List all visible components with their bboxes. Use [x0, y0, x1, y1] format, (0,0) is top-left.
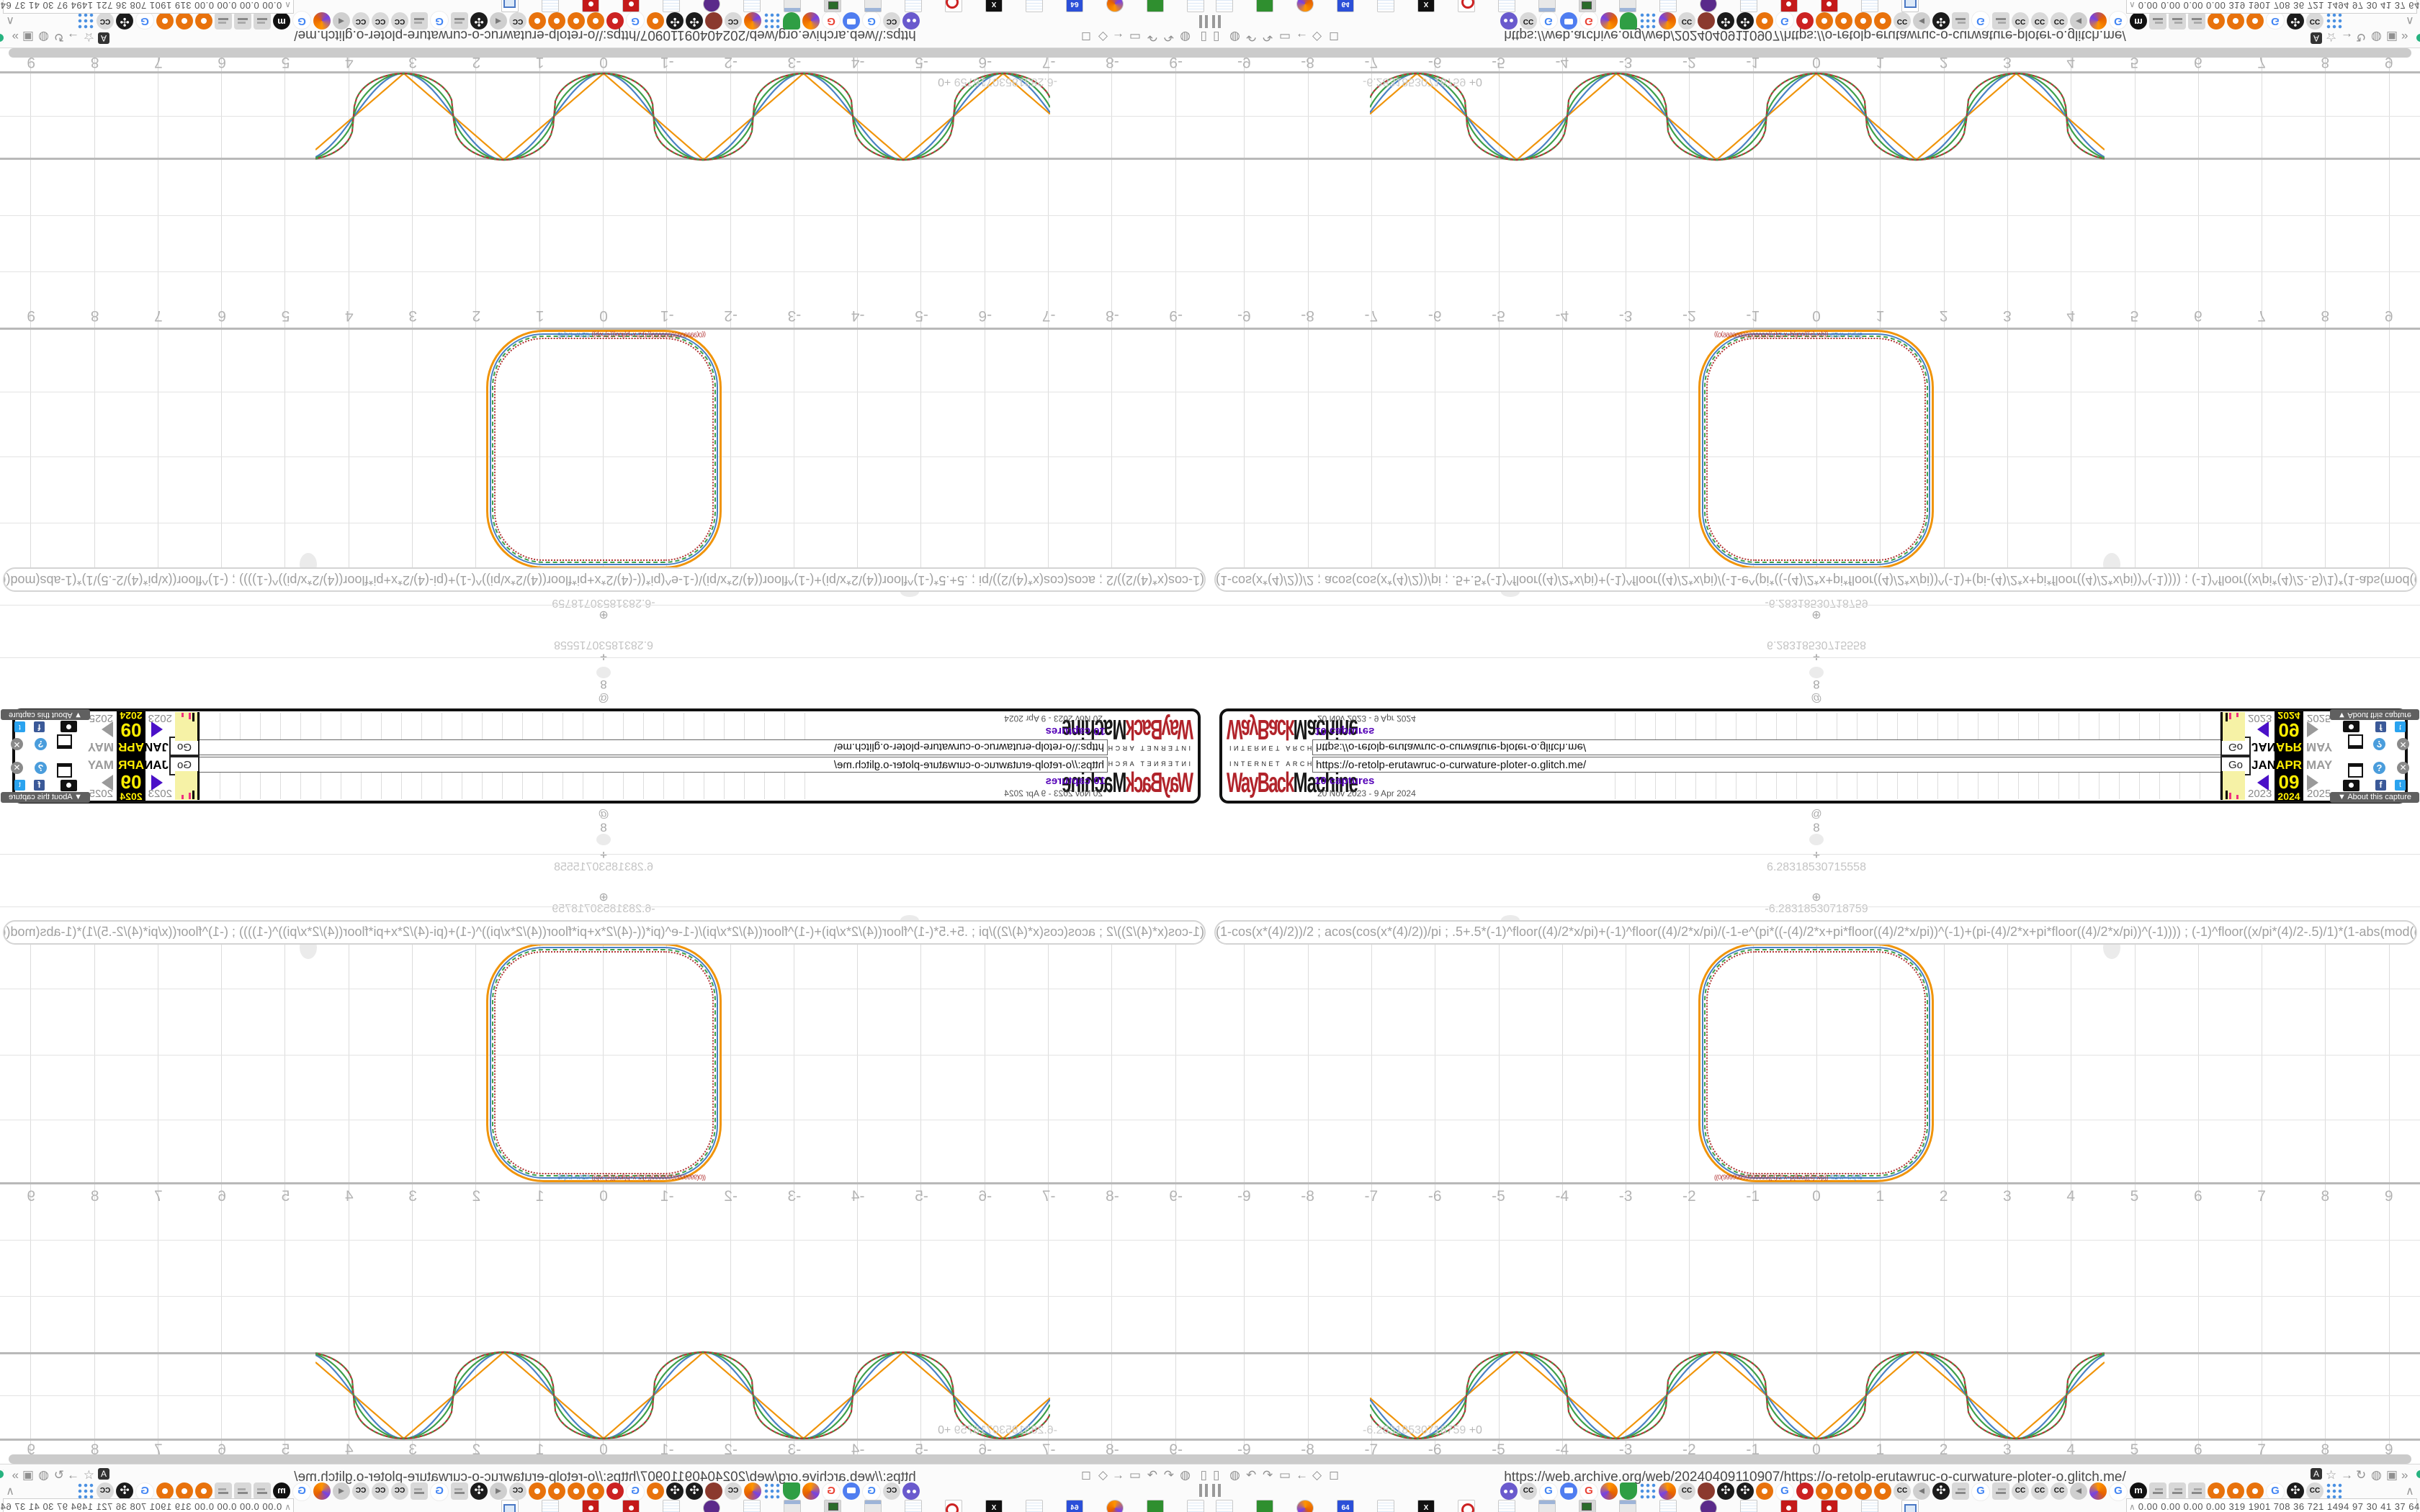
- extension-icon-g[interactable]: G: [626, 1482, 645, 1501]
- extension-icon-chat[interactable]: [843, 12, 860, 30]
- globe-icon[interactable]: ◍: [38, 1468, 49, 1482]
- extension-icon-ff[interactable]: [1659, 1482, 1676, 1500]
- extension-icon-dots[interactable]: [2326, 1482, 2343, 1500]
- extension-icon-gear[interactable]: [1835, 12, 1852, 30]
- extension-icon-gear[interactable]: [529, 12, 546, 30]
- timeline-current-window[interactable]: [2220, 712, 2245, 741]
- extension-icon-gear[interactable]: [156, 1482, 174, 1500]
- taskbar-item-blackx[interactable]: X: [985, 1500, 1003, 1512]
- pause-bars-icon[interactable]: [1212, 15, 1224, 28]
- extension-icon-stairs[interactable]: [451, 1482, 468, 1500]
- taskbar-item-doc[interactable]: [663, 0, 680, 12]
- trash-icon[interactable]: ▯: [1213, 1468, 1219, 1482]
- extension-icon-ff[interactable]: [802, 12, 820, 30]
- taskbar-item-ff[interactable]: [1106, 1500, 1124, 1512]
- taskbar-item-disk[interactable]: 64: [1337, 1500, 1354, 1512]
- window-icon[interactable]: [2348, 763, 2363, 778]
- extension-icon-m[interactable]: m: [273, 1482, 290, 1500]
- translate-icon[interactable]: A: [2311, 1468, 2322, 1480]
- capture-timeline[interactable]: [1615, 713, 2222, 739]
- globe-icon[interactable]: ◍: [1229, 1468, 1240, 1482]
- extension-icon-g[interactable]: G: [292, 1482, 311, 1501]
- pause-bars-icon[interactable]: [1196, 1484, 1208, 1497]
- globe-icon[interactable]: ◍: [1180, 1468, 1191, 1482]
- extension-icon-gear[interactable]: [1835, 1482, 1852, 1500]
- taskbar-item-ff[interactable]: [1106, 0, 1124, 12]
- extension-icon-stairs[interactable]: [2188, 1482, 2205, 1500]
- horizontal-scrollbar[interactable]: [1210, 1454, 2411, 1464]
- taskbar-item-doc[interactable]: [542, 0, 559, 12]
- month-prev[interactable]: JAN: [2251, 758, 2276, 773]
- collapse-chevron-icon[interactable]: ∧: [2406, 14, 2414, 28]
- permission-dot-icon[interactable]: ●: [2416, 34, 2420, 42]
- year-current[interactable]: 2024: [2275, 710, 2303, 721]
- extension-icon-stairs[interactable]: [254, 12, 271, 30]
- extension-icon-gear[interactable]: [176, 1482, 193, 1500]
- facebook-share-icon[interactable]: f: [2375, 721, 2386, 732]
- extension-icon-gear[interactable]: [176, 12, 193, 30]
- extension-icon-stairs[interactable]: [254, 1482, 271, 1500]
- extension-icon-stairs[interactable]: [2169, 1482, 2186, 1500]
- extension-icon-gear[interactable]: [1796, 1482, 1814, 1500]
- taskbar-item-doc[interactable]: [1740, 0, 1757, 12]
- extension-icon-stairs[interactable]: [234, 1482, 251, 1500]
- puzzle-icon[interactable]: ▣: [2386, 30, 2398, 44]
- extension-icon-cc[interactable]: CC: [352, 12, 369, 30]
- extension-icon-g[interactable]: G: [822, 11, 841, 30]
- reload-icon[interactable]: ↻: [2356, 30, 2366, 44]
- taskbar-item-redbox[interactable]: [622, 0, 640, 12]
- taskbar-item-doc[interactable]: [1740, 1500, 1757, 1512]
- extension-icon-gear[interactable]: [548, 12, 565, 30]
- extension-icon-gear[interactable]: [1816, 12, 1833, 30]
- extension-icon-g[interactable]: G: [1579, 1482, 1598, 1501]
- extension-icon-spk[interactable]: ◂: [333, 12, 350, 30]
- extension-icon-ff[interactable]: [802, 1482, 820, 1500]
- taskbar-item-doc[interactable]: [905, 1500, 922, 1512]
- taskbar-item-disk[interactable]: 64: [1066, 0, 1083, 12]
- capture-timeline[interactable]: [1615, 773, 2222, 799]
- facebook-share-icon[interactable]: f: [34, 780, 45, 791]
- extension-icon-gear[interactable]: [156, 12, 174, 30]
- taskbar-item-win[interactable]: [501, 1500, 519, 1512]
- folder-icon[interactable]: ▭: [1279, 1468, 1291, 1482]
- extension-icon-gear[interactable]: [606, 12, 624, 30]
- extension-icon-moth[interactable]: ✣: [2287, 12, 2304, 30]
- star-icon[interactable]: ☆: [84, 30, 94, 44]
- extension-icon-gear[interactable]: [1756, 12, 1773, 30]
- extension-icon-moth[interactable]: ✣: [1717, 1482, 1734, 1500]
- extension-icon-ff[interactable]: [1659, 12, 1676, 30]
- extension-icon-chat[interactable]: [1560, 1482, 1577, 1500]
- stats-chevron-icon[interactable]: ∧: [284, 1502, 291, 1512]
- taskbar-item-ff[interactable]: [1296, 0, 1314, 12]
- extension-icon-ff[interactable]: [744, 1482, 761, 1500]
- back-arrow-icon[interactable]: ←: [1112, 1468, 1124, 1482]
- about-this-capture-button[interactable]: ▼ About this capture: [1, 792, 90, 803]
- lock-icon[interactable]: ◻: [1081, 30, 1091, 44]
- extension-icon-g[interactable]: G: [862, 1482, 881, 1501]
- star-icon[interactable]: ☆: [2326, 30, 2336, 44]
- extension-icon-star8[interactable]: ✣: [470, 12, 488, 30]
- lock-icon[interactable]: ◻: [1081, 1468, 1091, 1482]
- taskbar-item-doc[interactable]: [1377, 0, 1394, 12]
- year-next[interactable]: 2025: [89, 712, 113, 724]
- shield-icon[interactable]: ◇: [1312, 1468, 1322, 1482]
- lock-icon[interactable]: ◻: [1329, 30, 1339, 44]
- overflow-chevrons-icon[interactable]: »: [12, 30, 19, 44]
- extension-icon-disc[interactable]: [1500, 12, 1518, 30]
- taskbar-item-win[interactable]: [1901, 0, 1919, 12]
- extension-icon-gear[interactable]: [568, 12, 585, 30]
- reload-icon[interactable]: ↻: [54, 30, 64, 44]
- extension-icon-stairs[interactable]: [1992, 1482, 2009, 1500]
- extension-icon-moth[interactable]: ✣: [1736, 12, 1754, 30]
- month-next[interactable]: MAY: [88, 758, 114, 773]
- month-current[interactable]: APR: [2275, 758, 2303, 773]
- extension-icon-moth[interactable]: ✣: [2287, 1482, 2304, 1500]
- taskbar-item-doc[interactable]: [1377, 1500, 1394, 1512]
- about-this-capture-button[interactable]: ▼ About this capture: [2330, 792, 2419, 803]
- taskbar-item-doc[interactable]: [1187, 0, 1204, 12]
- equation-input[interactable]: (1-cos(x*(4)/2))/2 ; acos(cos(x*(4)/2))/…: [3, 920, 1206, 945]
- extension-icon-gear[interactable]: [647, 1482, 664, 1500]
- taskbar-item-redbox[interactable]: [582, 0, 599, 12]
- help-icon[interactable]: ?: [2373, 738, 2385, 750]
- taskbar-item-calc[interactable]: [864, 1500, 882, 1512]
- extension-icon-stairs[interactable]: [2169, 12, 2186, 30]
- year-current[interactable]: 2024: [117, 710, 145, 721]
- extension-icon-stairs[interactable]: [1952, 12, 1969, 30]
- taskbar-item-green[interactable]: [1256, 0, 1273, 12]
- year-current[interactable]: 2024: [2275, 791, 2303, 802]
- translate-icon[interactable]: A: [2311, 32, 2322, 44]
- pause-bars-icon[interactable]: [1196, 15, 1208, 28]
- collapse-chevron-icon[interactable]: ∧: [6, 14, 14, 28]
- extension-icon-moth[interactable]: ✣: [1717, 12, 1734, 30]
- extension-icon-moth[interactable]: ✣: [1736, 1482, 1754, 1500]
- taskbar-item-redbox[interactable]: [622, 1500, 640, 1512]
- taskbar-item-doc[interactable]: [663, 1500, 680, 1512]
- trash-icon[interactable]: ▯: [1201, 1468, 1207, 1482]
- stats-chevron-icon[interactable]: ∧: [284, 1, 291, 11]
- facebook-share-icon[interactable]: f: [2375, 780, 2386, 791]
- horizontal-scrollbar[interactable]: [9, 1454, 1210, 1464]
- puzzle-icon[interactable]: ▣: [22, 30, 34, 44]
- taskbar-item-doc[interactable]: [1026, 1500, 1043, 1512]
- extension-icon-g[interactable]: G: [1539, 1482, 1558, 1501]
- extension-icon-stairs[interactable]: [234, 12, 251, 30]
- extension-icon-gear[interactable]: [548, 1482, 565, 1500]
- back-arrow-icon[interactable]: ←: [1296, 30, 1308, 44]
- taskbar-item-redbox[interactable]: [1780, 1500, 1798, 1512]
- extension-icon-disc[interactable]: [902, 1482, 920, 1500]
- taskbar-item-doc[interactable]: [1026, 0, 1043, 12]
- month-next[interactable]: MAY: [88, 739, 114, 754]
- puzzle-icon[interactable]: ▣: [2386, 1468, 2398, 1482]
- extension-icon-m[interactable]: m: [2130, 12, 2147, 30]
- taskbar-item-blackx[interactable]: X: [1417, 1500, 1435, 1512]
- taskbar-item-green[interactable]: [1147, 0, 1164, 12]
- extension-icon-stairs[interactable]: [451, 12, 468, 30]
- extension-icon-dots[interactable]: [77, 12, 94, 30]
- extension-icon-star8[interactable]: ✣: [1932, 12, 1950, 30]
- extension-icon-spk[interactable]: ◂: [1913, 1482, 1930, 1500]
- year-next[interactable]: 2025: [2307, 712, 2331, 724]
- year-prev[interactable]: 2023: [148, 712, 172, 724]
- extension-icon-cc[interactable]: CC: [509, 12, 526, 30]
- extension-icon-cc[interactable]: CC: [2051, 12, 2068, 30]
- globe-icon[interactable]: ◍: [2371, 1468, 2382, 1482]
- undo-icon[interactable]: ↶: [1164, 30, 1174, 44]
- taskbar-item-calc[interactable]: [1619, 0, 1636, 12]
- timeline-current-window[interactable]: [175, 771, 200, 800]
- screenshot-icon[interactable]: [2343, 780, 2359, 791]
- taskbar-item-owl[interactable]: [703, 0, 720, 12]
- puzzle-icon[interactable]: ▣: [22, 1468, 34, 1482]
- extension-icon-stairs[interactable]: [215, 1482, 232, 1500]
- twitter-share-icon[interactable]: t: [2395, 721, 2406, 732]
- extension-icon-cc[interactable]: CC: [2031, 1482, 2048, 1500]
- taskbar-item-win[interactable]: [501, 0, 519, 12]
- captures-link[interactable]: 10 captures: [1314, 725, 1374, 737]
- extension-icon-cc[interactable]: CC: [2012, 12, 2029, 30]
- taskbar-item-doc[interactable]: [1216, 1500, 1233, 1512]
- extension-icon-moth[interactable]: ✣: [116, 1482, 133, 1500]
- extension-icon-spk[interactable]: ◂: [2070, 12, 2087, 30]
- taskbar-item-redbox[interactable]: [1821, 1500, 1838, 1512]
- globe-icon[interactable]: ◍: [2371, 30, 2382, 44]
- extension-icon-stairs[interactable]: [215, 12, 232, 30]
- extension-icon-stairs[interactable]: [2188, 12, 2205, 30]
- close-banner-icon[interactable]: ✕: [11, 738, 23, 750]
- extension-icon-ff[interactable]: [313, 1482, 331, 1500]
- extension-icon-cc[interactable]: CC: [2051, 1482, 2068, 1500]
- twitter-share-icon[interactable]: t: [14, 721, 25, 732]
- horizontal-scrollbar[interactable]: [9, 48, 1210, 58]
- window-icon[interactable]: [2348, 734, 2363, 749]
- taskbar-item-doc[interactable]: [743, 0, 761, 12]
- taskbar-item-ff[interactable]: [1296, 1500, 1314, 1512]
- extension-icon-g[interactable]: G: [626, 11, 645, 30]
- window-icon[interactable]: [57, 734, 72, 749]
- extension-icon-moth[interactable]: ✣: [686, 12, 703, 30]
- extension-icon-g[interactable]: G: [1579, 11, 1598, 30]
- taskbar-item-pc[interactable]: [824, 0, 841, 12]
- extension-icon-gear[interactable]: [587, 1482, 604, 1500]
- month-prev[interactable]: JAN: [2251, 739, 2276, 754]
- extension-icon-ff[interactable]: [2089, 1482, 2107, 1500]
- extension-icon-moth[interactable]: ✣: [686, 1482, 703, 1500]
- extension-icon-ff[interactable]: [1600, 12, 1618, 30]
- wayback-url-input[interactable]: [1312, 757, 2221, 773]
- overflow-chevrons-icon[interactable]: »: [2401, 30, 2408, 44]
- extension-icon-cc[interactable]: CC: [1894, 1482, 1911, 1500]
- taskbar-item-doc[interactable]: [1659, 0, 1677, 12]
- extension-icon-spk[interactable]: ◂: [490, 1482, 507, 1500]
- close-banner-icon[interactable]: ✕: [11, 762, 23, 774]
- help-icon[interactable]: ?: [2373, 762, 2385, 774]
- extension-icon-shield[interactable]: [783, 12, 800, 30]
- about-this-capture-button[interactable]: ▼ About this capture: [2330, 709, 2419, 720]
- stats-chevron-icon[interactable]: ∧: [2129, 1502, 2136, 1512]
- year-current[interactable]: 2024: [117, 791, 145, 802]
- extension-icon-cc[interactable]: CC: [372, 12, 389, 30]
- extension-icon-gear[interactable]: [647, 12, 664, 30]
- month-current[interactable]: APR: [117, 739, 145, 754]
- forward-arrow-icon[interactable]: →: [2341, 30, 2353, 44]
- extension-icon-disc[interactable]: [902, 12, 920, 30]
- taskbar-item-redgear[interactable]: [1458, 0, 1475, 12]
- extension-icon-moth[interactable]: ✣: [666, 12, 684, 30]
- redo-icon[interactable]: ↷: [1263, 30, 1273, 44]
- permission-dot-icon[interactable]: ●: [2416, 1470, 2420, 1478]
- extension-icon-cc[interactable]: CC: [1894, 12, 1911, 30]
- extension-icon-m[interactable]: m: [273, 12, 290, 30]
- taskbar-item-calc[interactable]: [1538, 0, 1556, 12]
- collapse-chevron-icon[interactable]: ∧: [6, 1484, 14, 1498]
- month-current[interactable]: APR: [2275, 739, 2303, 754]
- extension-icon-stairs[interactable]: [2149, 1482, 2166, 1500]
- extension-icon-ff[interactable]: [2089, 12, 2107, 30]
- taskbar-item-doc[interactable]: [1659, 1500, 1677, 1512]
- extension-icon-stairs[interactable]: [2149, 12, 2166, 30]
- taskbar-item-doc[interactable]: [1861, 1500, 1878, 1512]
- capture-timeline[interactable]: [198, 773, 805, 799]
- taskbar-item-owl[interactable]: [703, 1500, 720, 1512]
- taskbar-item-blackx[interactable]: X: [1417, 0, 1435, 12]
- trash-icon[interactable]: ▯: [1201, 30, 1207, 44]
- extension-icon-gear[interactable]: [568, 1482, 585, 1500]
- undo-icon[interactable]: ↶: [1246, 30, 1256, 44]
- translate-icon[interactable]: A: [98, 1468, 109, 1480]
- extension-icon-gear[interactable]: [2227, 12, 2244, 30]
- extension-icon-fox[interactable]: [1698, 1482, 1715, 1500]
- screenshot-icon[interactable]: [60, 721, 77, 732]
- twitter-share-icon[interactable]: t: [14, 780, 25, 791]
- close-banner-icon[interactable]: ✕: [2397, 762, 2409, 774]
- equation-input[interactable]: (1-cos(x*(4)/2))/2 ; acos(cos(x*(4)/2))/…: [3, 567, 1206, 592]
- taskbar-item-redgear[interactable]: [945, 0, 962, 12]
- facebook-share-icon[interactable]: f: [34, 721, 45, 732]
- extension-icon-cc[interactable]: CC: [509, 1482, 526, 1500]
- overflow-chevrons-icon[interactable]: »: [2401, 1468, 2408, 1482]
- extension-icon-gear[interactable]: [2246, 12, 2264, 30]
- horizontal-scrollbar[interactable]: [1210, 48, 2411, 58]
- extension-icon-dots[interactable]: [2326, 12, 2343, 30]
- extension-icon-shield[interactable]: [1620, 1482, 1637, 1500]
- extension-icon-fox[interactable]: [1698, 12, 1715, 30]
- month-prev[interactable]: JAN: [144, 758, 169, 773]
- taskbar-item-doc[interactable]: [1216, 0, 1233, 12]
- taskbar-item-doc[interactable]: [1861, 0, 1878, 12]
- extension-icon-dots[interactable]: [77, 1482, 94, 1500]
- extension-icon-stairs[interactable]: [411, 12, 428, 30]
- taskbar-item-green[interactable]: [1256, 1500, 1273, 1512]
- wayback-url-input[interactable]: [199, 757, 1108, 773]
- extension-icon-cc[interactable]: CC: [2306, 1482, 2323, 1500]
- extension-icon-g[interactable]: G: [822, 1482, 841, 1501]
- month-next[interactable]: MAY: [2306, 758, 2332, 773]
- extension-icon-stairs[interactable]: [1952, 1482, 1969, 1500]
- taskbar-item-pc[interactable]: [1579, 1500, 1596, 1512]
- extension-icon-stairs[interactable]: [411, 1482, 428, 1500]
- taskbar-item-calc[interactable]: [784, 0, 801, 12]
- shield-icon[interactable]: ◇: [1098, 1468, 1108, 1482]
- extension-icon-dots[interactable]: [763, 12, 781, 30]
- globe-icon[interactable]: ◍: [38, 30, 49, 44]
- shield-icon[interactable]: ◇: [1098, 30, 1108, 44]
- extension-icon-gear[interactable]: [195, 12, 212, 30]
- overflow-chevrons-icon[interactable]: »: [12, 1468, 19, 1482]
- extension-icon-gear[interactable]: [529, 1482, 546, 1500]
- extension-icon-gear[interactable]: [1855, 1482, 1872, 1500]
- taskbar-item-blackx[interactable]: X: [985, 0, 1003, 12]
- forward-arrow-icon[interactable]: →: [67, 1468, 79, 1482]
- screenshot-icon[interactable]: [60, 780, 77, 791]
- stats-chevron-icon[interactable]: ∧: [2129, 1, 2136, 11]
- extension-icon-cc[interactable]: CC: [352, 1482, 369, 1500]
- taskbar-item-pc[interactable]: [1579, 0, 1596, 12]
- extension-icon-cc[interactable]: CC: [1520, 12, 1537, 30]
- taskbar-item-doc[interactable]: [1187, 1500, 1204, 1512]
- forward-arrow-icon[interactable]: →: [67, 30, 79, 44]
- extension-icon-cc[interactable]: CC: [97, 1482, 114, 1500]
- extension-icon-cc[interactable]: CC: [725, 1482, 742, 1500]
- timeline-current-window[interactable]: [175, 712, 200, 741]
- taskbar-item-doc[interactable]: [542, 1500, 559, 1512]
- taskbar-item-green[interactable]: [1147, 1500, 1164, 1512]
- extension-icon-dots[interactable]: [763, 1482, 781, 1500]
- extension-icon-gear[interactable]: [606, 1482, 624, 1500]
- lock-icon[interactable]: ◻: [1329, 1468, 1339, 1482]
- extension-icon-cc[interactable]: CC: [97, 12, 114, 30]
- taskbar-item-redgear[interactable]: [1458, 1500, 1475, 1512]
- reload-icon[interactable]: ↻: [54, 1468, 64, 1482]
- taskbar-item-redbox[interactable]: [582, 1500, 599, 1512]
- close-banner-icon[interactable]: ✕: [2397, 738, 2409, 750]
- extension-icon-disc[interactable]: [1500, 1482, 1518, 1500]
- extension-icon-g[interactable]: G: [292, 11, 311, 30]
- extension-icon-gear[interactable]: [1756, 1482, 1773, 1500]
- taskbar-item-win[interactable]: [1901, 1500, 1919, 1512]
- taskbar-item-disk[interactable]: 64: [1337, 0, 1354, 12]
- extension-icon-g[interactable]: G: [2109, 11, 2128, 30]
- forward-arrow-icon[interactable]: →: [2341, 1468, 2353, 1482]
- folder-icon[interactable]: ▭: [1279, 30, 1291, 44]
- taskbar-item-disk[interactable]: 64: [1066, 1500, 1083, 1512]
- extension-icon-spk[interactable]: ◂: [2070, 1482, 2087, 1500]
- extension-icon-cc[interactable]: CC: [883, 12, 900, 30]
- extension-icon-cc[interactable]: CC: [2031, 12, 2048, 30]
- extension-icon-g[interactable]: G: [1775, 1482, 1794, 1501]
- extension-icon-stairs[interactable]: [1992, 12, 2009, 30]
- redo-icon[interactable]: ↷: [1147, 30, 1157, 44]
- extension-icon-gear[interactable]: [2208, 1482, 2225, 1500]
- trash-icon[interactable]: ▯: [1213, 30, 1219, 44]
- extension-icon-gear[interactable]: [195, 1482, 212, 1500]
- undo-icon[interactable]: ↶: [1246, 1468, 1256, 1482]
- extension-icon-shield[interactable]: [1620, 12, 1637, 30]
- extension-icon-shield[interactable]: [783, 1482, 800, 1500]
- extension-icon-moth[interactable]: ✣: [666, 1482, 684, 1500]
- globe-icon[interactable]: ◍: [1229, 30, 1240, 44]
- globe-icon[interactable]: ◍: [1180, 30, 1191, 44]
- shield-icon[interactable]: ◇: [1312, 30, 1322, 44]
- captures-link[interactable]: 10 captures: [1046, 775, 1106, 787]
- extension-icon-cc[interactable]: CC: [2012, 1482, 2029, 1500]
- extension-icon-m[interactable]: m: [2130, 1482, 2147, 1500]
